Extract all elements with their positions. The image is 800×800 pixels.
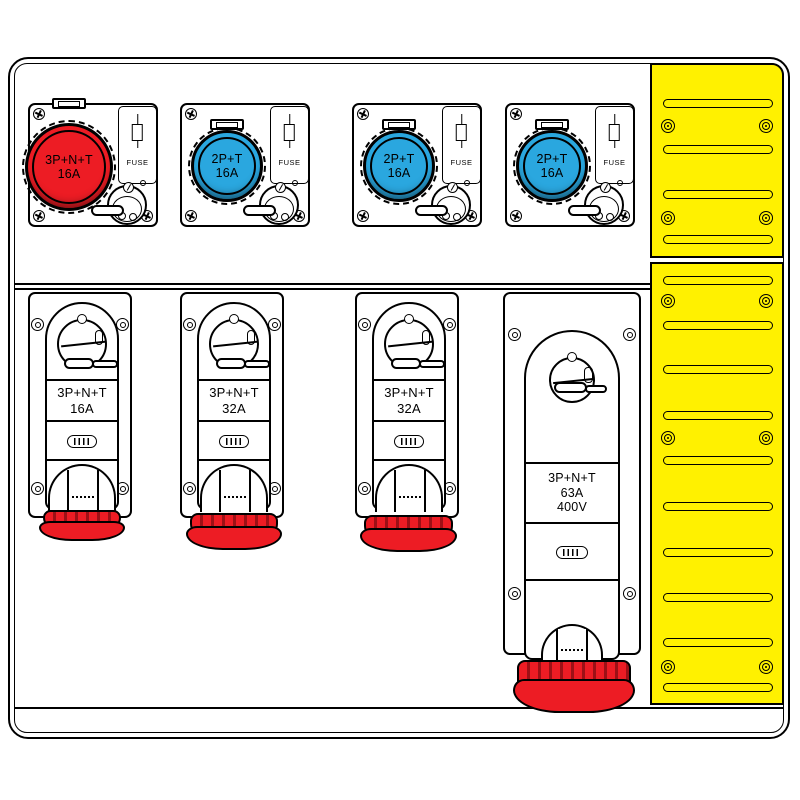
screw-ring-icon <box>31 482 44 495</box>
switch-lever[interactable] <box>419 360 445 368</box>
interlock-knob[interactable] <box>107 185 147 225</box>
body-seam-line <box>372 459 446 461</box>
switch-keyway <box>584 367 593 383</box>
rating-label: 3P+N+T16A <box>45 379 119 422</box>
switch-keyway <box>95 330 103 345</box>
vent-slot-icon <box>663 99 773 108</box>
outlet-unit-3pnt-32a: 3P+N+T32A <box>180 292 284 518</box>
vent-slot-icon <box>663 638 773 647</box>
outlet-unit-3pnt-63a: 3P+N+T63A400V <box>503 292 641 655</box>
fuse-icon <box>614 114 616 148</box>
rotary-switch[interactable] <box>57 319 107 369</box>
socket-label: 2P+T16A <box>194 133 260 199</box>
body-seam-line <box>524 579 620 581</box>
vent-slot-icon <box>663 235 773 244</box>
rotary-switch[interactable] <box>549 357 595 403</box>
screw-cross-icon <box>447 182 458 193</box>
panel-screw-icon <box>661 211 675 225</box>
combo-unit-3pnt-16a: 3P+N+T16A FUSE <box>28 103 158 227</box>
interlock-lever[interactable] <box>415 205 448 216</box>
panel-screw-icon <box>759 211 773 225</box>
vent-slot-icon <box>663 683 773 692</box>
socket-face-blue-16a[interactable]: 2P+T16A <box>363 130 435 202</box>
vent-slot-icon <box>663 365 773 374</box>
latch-icon <box>210 119 244 130</box>
switch-keyway <box>247 330 255 345</box>
panel-screw-icon <box>759 660 773 674</box>
vent-slot-icon <box>663 502 773 511</box>
socket-face-blue-16a[interactable]: 2P+T16A <box>191 130 263 202</box>
socket-neck-thread <box>556 629 588 662</box>
protective-cap-red[interactable] <box>360 515 457 552</box>
fuse-icon <box>289 114 291 148</box>
screw-ring-icon <box>116 318 129 331</box>
indicator-dot <box>617 180 623 186</box>
rating-label: 3P+N+T32A <box>197 379 271 422</box>
rotary-switch[interactable] <box>209 319 259 369</box>
screw-ring-icon <box>508 587 521 600</box>
switch-pivot <box>77 314 87 324</box>
socket-face-blue-16a[interactable]: 2P+T16A <box>516 130 588 202</box>
switch-handle[interactable] <box>216 358 246 369</box>
rating-label: 3P+N+T63A400V <box>524 462 620 524</box>
panel-screw-icon <box>661 294 675 308</box>
vent-icon <box>67 435 97 448</box>
socket-label: 2P+T16A <box>366 133 432 199</box>
screw-cross-icon <box>33 108 45 120</box>
screw-cross-icon <box>33 210 45 222</box>
interlock-pin <box>129 213 137 221</box>
switch-handle[interactable] <box>554 382 587 393</box>
body-seam-line <box>45 459 119 461</box>
vent-slot-icon <box>663 145 773 154</box>
panel-screw-icon <box>759 119 773 133</box>
cap-base <box>360 528 457 552</box>
socket-label: 2P+T16A <box>519 133 585 199</box>
socket-face-red-16a[interactable]: 3P+N+T16A <box>25 123 113 211</box>
fuse-label: FUSE <box>596 158 633 167</box>
switch-keyway <box>422 330 430 345</box>
screw-cross-icon <box>357 210 369 222</box>
indicator-dot <box>140 180 146 186</box>
interlock-lever[interactable] <box>568 205 601 216</box>
vent-slot-icon <box>663 276 773 285</box>
interlock-pin <box>606 213 614 221</box>
cap-base <box>513 679 635 713</box>
latch-icon <box>52 98 86 109</box>
outlet-unit-3pnt-16a: 3P+N+T16A <box>28 292 132 518</box>
combo-unit-2pt-16a: 2P+T16A FUSE <box>180 103 310 227</box>
screw-cross-icon <box>275 182 286 193</box>
switch-pivot <box>404 314 414 324</box>
socket-neck-thread <box>219 470 251 512</box>
screw-ring-icon <box>443 318 456 331</box>
indicator-dot <box>464 180 470 186</box>
screw-ring-icon <box>508 328 521 341</box>
panel-screw-icon <box>759 431 773 445</box>
screw-cross-icon <box>600 182 611 193</box>
protective-cap-red[interactable] <box>39 510 125 541</box>
interlock-knob[interactable] <box>584 185 624 225</box>
vent-icon <box>394 435 424 448</box>
vent-slot-icon <box>663 321 773 330</box>
screw-ring-icon <box>623 328 636 341</box>
fuse-icon <box>137 114 139 148</box>
fuse-label: FUSE <box>443 158 480 167</box>
socket-label: 3P+N+T16A <box>28 126 110 208</box>
screw-ring-icon <box>183 482 196 495</box>
rating-label: 3P+N+T32A <box>372 379 446 422</box>
switch-lever[interactable] <box>585 385 607 393</box>
gland-panel-section-top <box>650 63 784 258</box>
fuse-label: FUSE <box>271 158 308 167</box>
socket-neck-thread <box>394 470 426 512</box>
screw-cross-icon <box>357 108 369 120</box>
screw-ring-icon <box>358 482 371 495</box>
interlock-pin <box>281 213 289 221</box>
screw-cross-icon <box>185 210 197 222</box>
latch-icon <box>535 119 569 130</box>
screw-cross-icon <box>123 182 134 193</box>
interlock-lever[interactable] <box>243 205 276 216</box>
panel-divider-line <box>15 288 650 290</box>
distribution-board-illustration: 3P+N+T16A FUSE 2P+T16A FUSE <box>0 0 800 800</box>
screw-cross-icon <box>510 210 522 222</box>
cap-base <box>186 526 282 550</box>
body-seam-line <box>197 459 271 461</box>
switch-pivot <box>229 314 239 324</box>
panel-screw-icon <box>661 660 675 674</box>
indicator-dot <box>292 180 298 186</box>
switch-handle[interactable] <box>391 358 421 369</box>
combo-unit-2pt-16a: 2P+T16A FUSE <box>352 103 482 227</box>
interlock-lever[interactable] <box>91 205 124 216</box>
fuse-holder[interactable]: FUSE <box>270 106 309 184</box>
screw-ring-icon <box>358 318 371 331</box>
vent-slot-icon <box>663 190 773 199</box>
vent-icon <box>556 546 588 559</box>
vent-slot-icon <box>663 411 773 420</box>
screw-cross-icon <box>510 108 522 120</box>
fuse-icon <box>461 114 463 148</box>
enclosure-bottom-edge <box>15 707 784 709</box>
interlock-pin <box>453 213 461 221</box>
fuse-label: FUSE <box>119 158 156 167</box>
latch-icon <box>382 119 416 130</box>
panel-screw-icon <box>661 119 675 133</box>
combo-unit-2pt-16a: 2P+T16A FUSE <box>505 103 635 227</box>
panel-screw-icon <box>661 431 675 445</box>
screw-ring-icon <box>183 318 196 331</box>
panel-screw-icon <box>759 294 773 308</box>
interlock-knob[interactable] <box>259 185 299 225</box>
switch-handle[interactable] <box>64 358 94 369</box>
protective-cap-red[interactable] <box>513 660 635 713</box>
screw-ring-icon <box>31 318 44 331</box>
protective-cap-red[interactable] <box>186 513 282 550</box>
switch-pivot <box>567 352 577 362</box>
interlock-knob[interactable] <box>431 185 471 225</box>
fuse-holder[interactable]: FUSE <box>595 106 634 184</box>
panel-divider-line <box>15 283 650 285</box>
vent-slot-icon <box>663 456 773 465</box>
screw-ring-icon <box>268 318 281 331</box>
screw-ring-icon <box>623 587 636 600</box>
switch-lever[interactable] <box>92 360 118 368</box>
fuse-holder[interactable]: FUSE <box>118 106 157 184</box>
vent-slot-icon <box>663 593 773 602</box>
screw-cross-icon <box>185 108 197 120</box>
fuse-holder[interactable]: FUSE <box>442 106 481 184</box>
cap-base <box>39 521 125 541</box>
cable-gland-panel <box>650 63 784 705</box>
rotary-switch[interactable] <box>384 319 434 369</box>
switch-lever[interactable] <box>244 360 270 368</box>
vent-icon <box>219 435 249 448</box>
outlet-unit-3pnt-32a: 3P+N+T32A <box>355 292 459 518</box>
socket-neck-thread <box>67 470 99 512</box>
vent-slot-icon <box>663 548 773 557</box>
